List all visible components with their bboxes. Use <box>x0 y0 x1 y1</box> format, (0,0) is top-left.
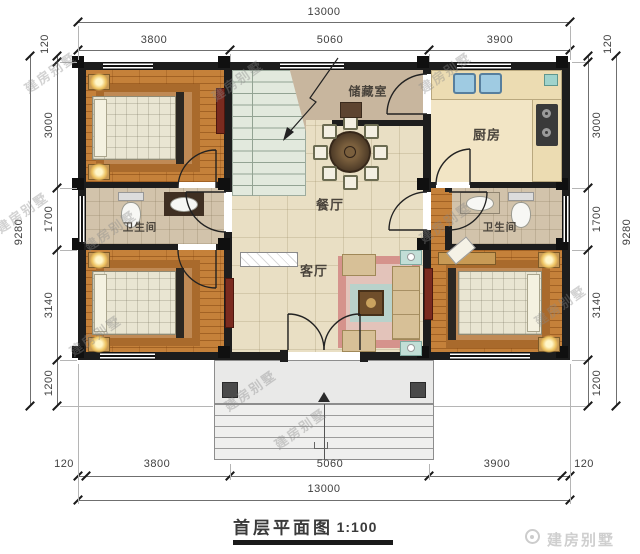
dim-line-bottom-segments <box>78 476 570 477</box>
dim-line-left-total <box>30 56 31 406</box>
dim-left-seg3: 3140 <box>43 292 55 318</box>
dim-bottom-seg1: 3800 <box>144 458 170 470</box>
ext-line <box>60 406 213 407</box>
dim-line-top-segments <box>78 50 570 51</box>
title-underline <box>233 540 393 545</box>
room-label-bathroom-right: 卫生间 <box>483 220 518 235</box>
dim-right-seg2: 1700 <box>591 206 603 232</box>
front-door-left <box>288 314 324 350</box>
dim-top-side-left: 120 <box>39 34 51 54</box>
dim-line-right-segments <box>588 56 589 406</box>
ext-line <box>78 364 79 504</box>
dim-bottom-seg2: 5060 <box>317 458 343 470</box>
dim-left-seg4: 1200 <box>43 370 55 396</box>
ext-line <box>434 406 586 407</box>
ext-line <box>60 250 77 251</box>
drawing-scale: 1:100 <box>337 519 378 535</box>
room-label-kitchen: 厨房 <box>473 125 501 144</box>
dim-bottom-side-right: 120 <box>574 458 594 470</box>
door-bedroomBR <box>389 192 427 230</box>
ext-line <box>230 464 231 480</box>
logo-icon <box>525 529 540 544</box>
dim-top-total: 13000 <box>307 6 340 18</box>
ext-line <box>572 62 586 63</box>
dim-top-seg1: 3800 <box>141 34 167 46</box>
ext-line <box>572 250 586 251</box>
ext-line <box>429 464 430 480</box>
ext-line <box>230 54 231 62</box>
ext-line <box>60 188 77 189</box>
ext-line <box>572 188 586 189</box>
logo-icon-dot <box>530 535 534 539</box>
ext-line <box>572 360 586 361</box>
ext-line <box>570 364 571 504</box>
room-label-storage: 储藏室 <box>348 83 387 100</box>
dim-right-seg1: 3000 <box>591 112 603 138</box>
ext-line <box>429 54 430 62</box>
dim-bottom-seg3: 3900 <box>484 458 510 470</box>
dim-line-right-total <box>616 56 617 406</box>
dim-right-seg3: 3140 <box>591 292 603 318</box>
dim-line-top-total <box>78 22 570 23</box>
dim-left-seg2: 1700 <box>43 206 55 232</box>
ext-line <box>570 26 571 60</box>
door-bedroomTL <box>178 150 216 188</box>
room-label-living: 客厅 <box>300 261 328 280</box>
dim-bottom-total: 13000 <box>307 483 340 495</box>
drawing-title: 首层平面图 <box>233 514 333 539</box>
dim-top-side-right: 120 <box>602 34 614 54</box>
stairs-break-line <box>286 58 338 136</box>
logo-text: 建房别墅 <box>547 529 615 550</box>
dim-line-left-segments <box>57 56 58 406</box>
door-bedroomBL <box>178 250 216 288</box>
room-label-dining: 餐厅 <box>316 195 344 214</box>
ext-line <box>78 26 79 60</box>
front-door-right <box>324 314 360 350</box>
dim-top-seg3: 3900 <box>487 34 513 46</box>
floor-plan: 储藏室 厨房 餐厅 客厅 卫生间 卫生间 13000 3800 5060 390… <box>0 0 640 554</box>
dim-top-seg2: 5060 <box>317 34 343 46</box>
dim-line-bottom-total <box>78 500 570 501</box>
dim-right-seg4: 1200 <box>591 370 603 396</box>
door-kitchen <box>436 149 470 185</box>
ext-line <box>60 360 77 361</box>
dim-left-seg1: 3000 <box>43 112 55 138</box>
dim-right-total: 9280 <box>621 219 633 245</box>
dim-bottom-side-left: 120 <box>54 458 74 470</box>
door-bathL <box>186 192 226 232</box>
